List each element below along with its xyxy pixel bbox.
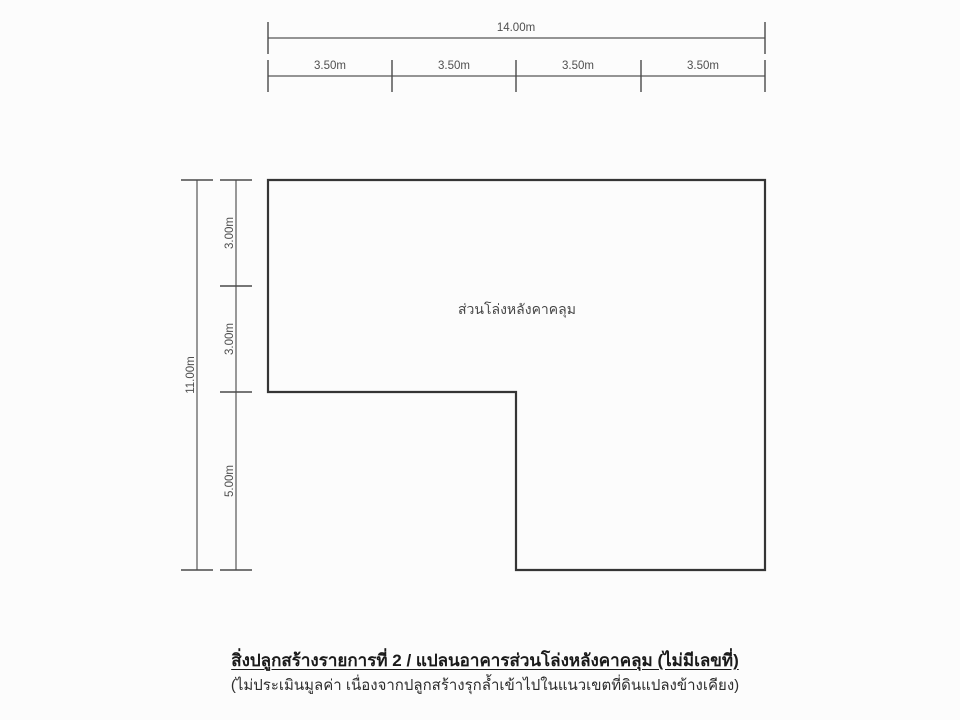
dimension-label-seg-2: 3.00m: [224, 323, 236, 355]
dimension-label-bay-1: 3.50m: [314, 60, 346, 72]
dimension-label-total-height: 11.00m: [185, 356, 197, 394]
floor-plan-drawing: 14.00m 3.50m 3.50m 3.50m 3.50m 11.00m: [0, 0, 960, 720]
top-dimension-total: 14.00m: [268, 22, 765, 54]
caption-block: สิ่งปลูกสร้างรายการที่ 2 / แปลนอาคารส่วน…: [5, 648, 960, 698]
dimension-label-bay-4: 3.50m: [687, 60, 719, 72]
scanned-floorplan-page: 14.00m 3.50m 3.50m 3.50m 3.50m 11.00m: [0, 0, 960, 720]
dimension-label-bay-2: 3.50m: [438, 60, 470, 72]
top-dimension-segments: 3.50m 3.50m 3.50m 3.50m: [268, 60, 765, 92]
left-dimension-total: 11.00m: [181, 180, 213, 570]
dimension-label-total-width: 14.00m: [497, 22, 535, 34]
caption-title: สิ่งปลูกสร้างรายการที่ 2 / แปลนอาคารส่วน…: [5, 648, 960, 674]
left-dimension-segments: 3.00m 3.00m 5.00m: [220, 180, 252, 570]
area-label: ส่วนโล่งหลังคาคลุม: [458, 301, 576, 318]
caption-subtitle: (ไม่ประเมินมูลค่า เนื่องจากปลูกสร้างรุกล…: [5, 674, 960, 698]
dimension-label-seg-1: 3.00m: [224, 217, 236, 249]
dimension-label-seg-3: 5.00m: [224, 465, 236, 497]
building-outline: [268, 180, 765, 570]
dimension-label-bay-3: 3.50m: [562, 60, 594, 72]
